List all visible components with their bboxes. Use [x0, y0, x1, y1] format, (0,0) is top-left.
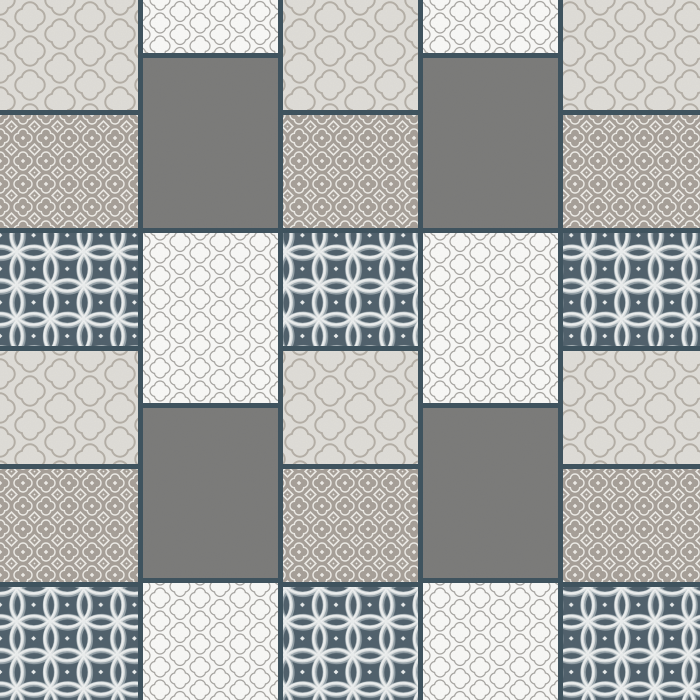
tile-slate-circle-lattice — [283, 233, 418, 346]
tile-taupe-flower-dot — [563, 115, 700, 228]
tile-heather-gray-solid — [423, 408, 558, 578]
tile-quatrefoil-trellis-light — [0, 351, 138, 464]
tile-heather-gray-solid — [143, 408, 278, 578]
tile-quatrefoil-lattice-white — [143, 233, 278, 403]
tile-quatrefoil-lattice-white — [143, 0, 278, 53]
tile-slate-circle-lattice — [0, 587, 138, 700]
tile-quatrefoil-trellis-light — [283, 351, 418, 464]
tile-quatrefoil-lattice-white — [423, 233, 558, 403]
tile-taupe-flower-dot — [283, 469, 418, 582]
tile-quatrefoil-trellis-light — [283, 0, 418, 110]
patchwork-canvas — [0, 0, 700, 700]
tile-quatrefoil-lattice-white — [423, 583, 558, 700]
tile-slate-circle-lattice — [563, 233, 700, 346]
tile-quatrefoil-lattice-white — [423, 0, 558, 53]
tile-taupe-flower-dot — [563, 469, 700, 582]
tile-heather-gray-solid — [143, 58, 278, 228]
tile-taupe-flower-dot — [0, 469, 138, 582]
tile-slate-circle-lattice — [563, 587, 700, 700]
tile-slate-circle-lattice — [0, 233, 138, 346]
tile-taupe-flower-dot — [283, 115, 418, 228]
tile-taupe-flower-dot — [0, 115, 138, 228]
tile-slate-circle-lattice — [283, 587, 418, 700]
tile-quatrefoil-trellis-light — [0, 0, 138, 110]
tile-quatrefoil-trellis-light — [563, 0, 700, 110]
tile-quatrefoil-lattice-white — [143, 583, 278, 700]
tile-heather-gray-solid — [423, 58, 558, 228]
patchwork-swatch — [0, 0, 700, 700]
tile-quatrefoil-trellis-light — [563, 351, 700, 464]
